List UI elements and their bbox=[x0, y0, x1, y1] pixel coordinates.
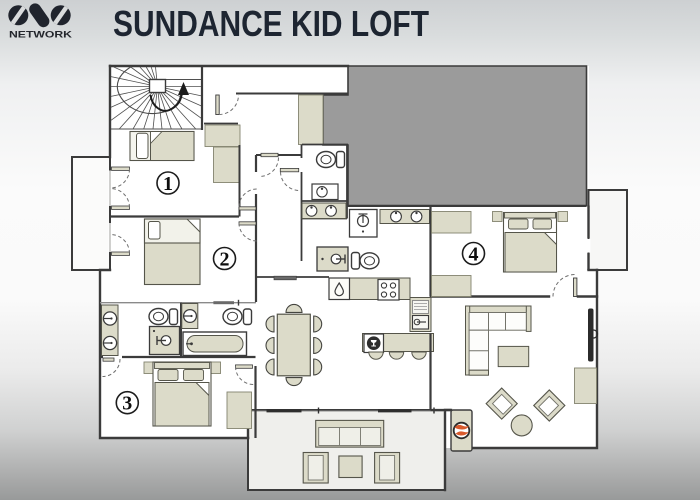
svg-text:2: 2 bbox=[220, 249, 230, 271]
svg-text:3: 3 bbox=[122, 393, 132, 415]
svg-text:1: 1 bbox=[163, 173, 173, 195]
svg-text:SUNDANCE KID LOFT: SUNDANCE KID LOFT bbox=[113, 3, 429, 44]
svg-text:NETWORK: NETWORK bbox=[9, 30, 73, 40]
svg-text:4: 4 bbox=[469, 244, 479, 266]
